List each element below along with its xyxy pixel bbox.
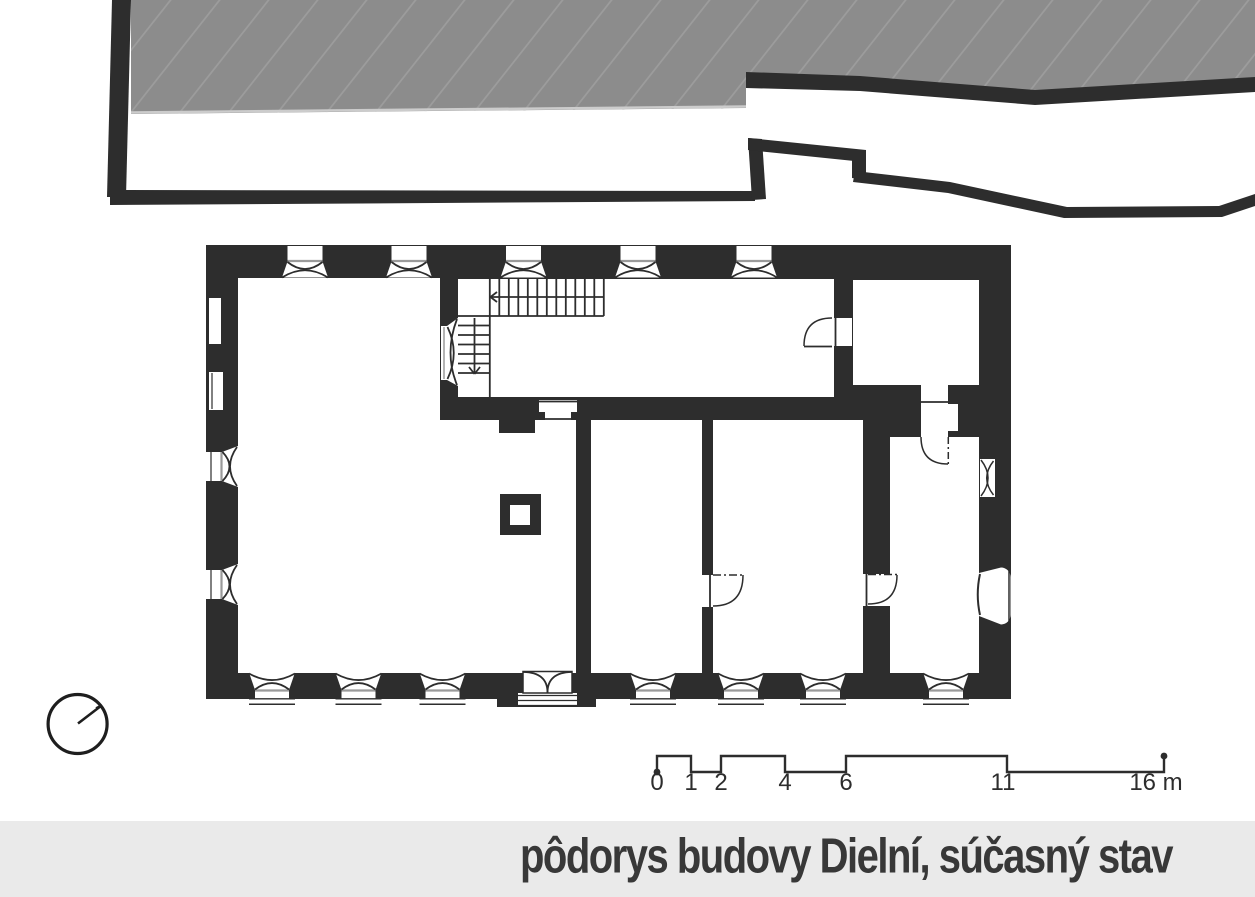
svg-text:6: 6 — [839, 769, 852, 796]
svg-text:4: 4 — [778, 769, 791, 796]
svg-text:1: 1 — [684, 769, 697, 796]
svg-text:16 m: 16 m — [1129, 769, 1182, 796]
svg-text:0: 0 — [650, 769, 663, 796]
svg-text:11: 11 — [991, 769, 1016, 796]
svg-text:pôdorys budovy Dielní, súčasný: pôdorys budovy Dielní, súčasný stav — [520, 830, 1174, 884]
svg-text:2: 2 — [714, 769, 727, 796]
